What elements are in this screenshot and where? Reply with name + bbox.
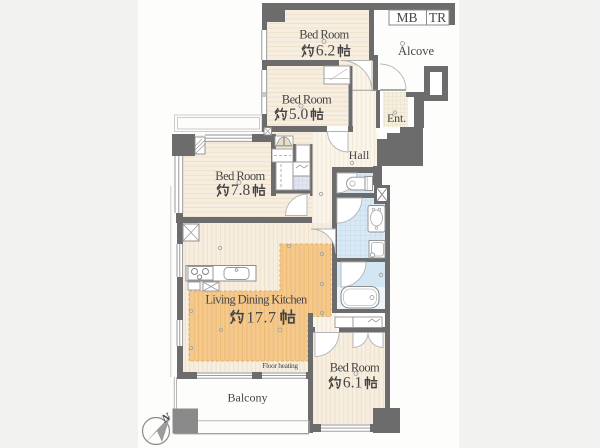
svg-text:Hall: Hall bbox=[349, 148, 370, 162]
svg-text:Ent.: Ent. bbox=[387, 111, 406, 125]
svg-text:MB: MB bbox=[396, 10, 417, 25]
svg-text:6.2: 6.2 bbox=[316, 42, 335, 59]
svg-text:Bed Room: Bed Room bbox=[330, 361, 380, 375]
svg-text:TR: TR bbox=[429, 10, 446, 25]
svg-text:Balcony: Balcony bbox=[228, 391, 268, 405]
svg-text:Living Dining Kitchen: Living Dining Kitchen bbox=[205, 293, 308, 307]
svg-text:Alcove: Alcove bbox=[398, 44, 435, 58]
svg-text:17.7: 17.7 bbox=[247, 309, 277, 326]
svg-text:5.0: 5.0 bbox=[289, 106, 309, 123]
svg-text:7.8: 7.8 bbox=[231, 182, 251, 199]
svg-text:Bed Room: Bed Room bbox=[282, 93, 332, 107]
svg-text:Floor heating: Floor heating bbox=[262, 361, 298, 370]
svg-text:Bed Room: Bed Room bbox=[299, 28, 349, 42]
svg-text:6.1: 6.1 bbox=[343, 374, 362, 391]
